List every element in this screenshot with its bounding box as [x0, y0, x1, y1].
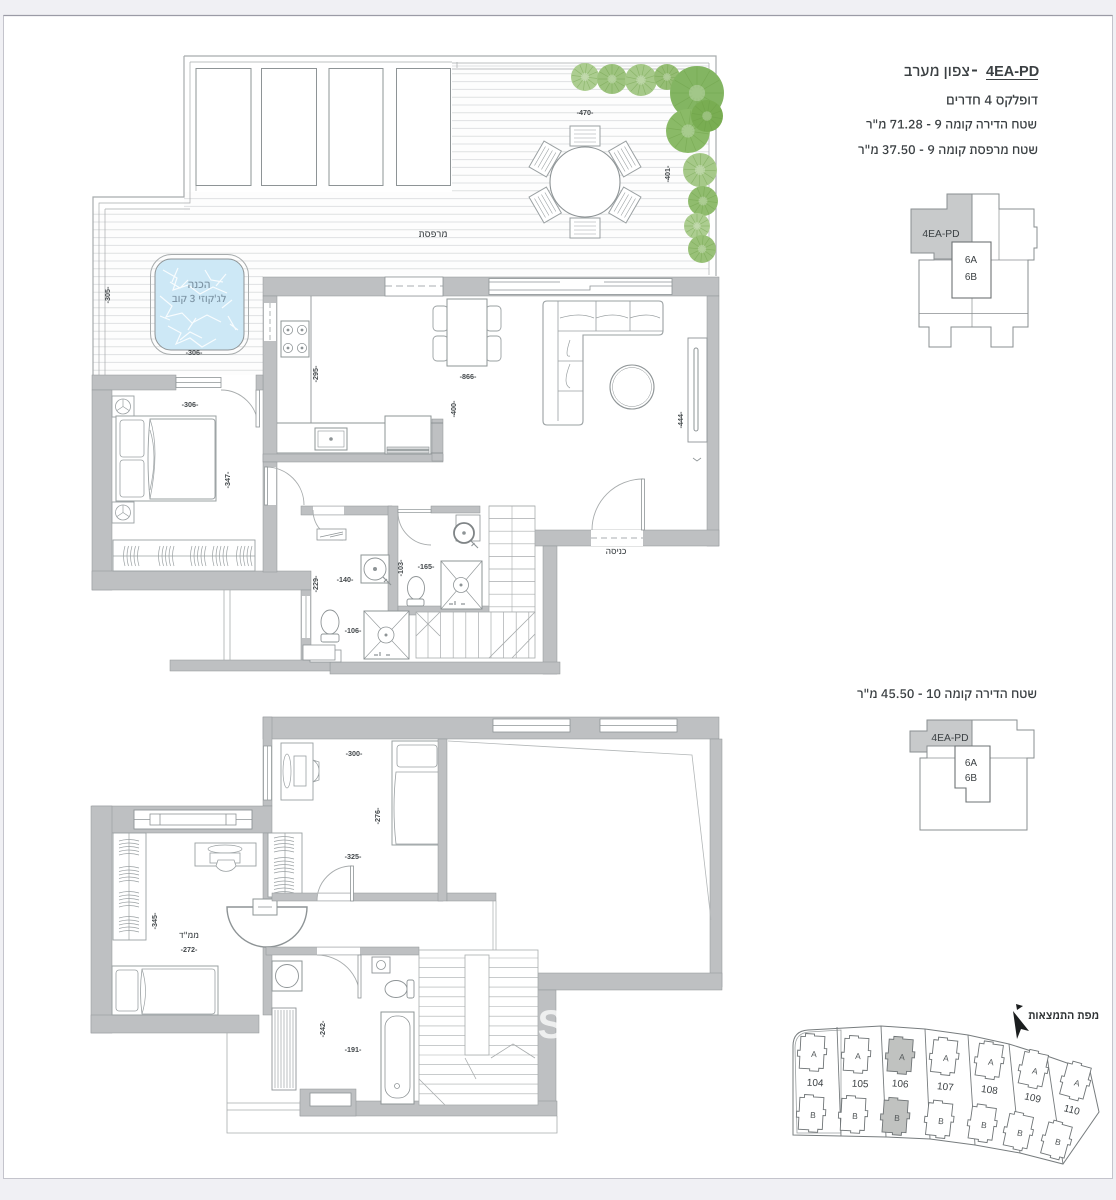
svg-text:107: 107 [936, 1081, 954, 1094]
svg-text:-306-: -306- [186, 348, 203, 357]
svg-text:A: A [899, 1052, 906, 1062]
svg-text:B: B [852, 1111, 859, 1121]
svg-text:4EA-PD: 4EA-PD [922, 229, 959, 240]
svg-text:-106-: -106- [345, 626, 362, 635]
svg-text:-140-: -140- [337, 575, 354, 584]
svg-text:-276-: -276- [373, 807, 382, 824]
svg-text:-272-: -272- [181, 945, 198, 954]
svg-text:4EA-PD: 4EA-PD [931, 733, 968, 744]
svg-text:-191-: -191- [345, 1045, 362, 1054]
svg-text:-229-: -229- [311, 575, 320, 592]
svg-text:-345-: -345- [150, 912, 159, 929]
svg-text:-866-: -866- [460, 372, 477, 381]
svg-text:-295-: -295- [311, 365, 320, 382]
svg-text:6A: 6A [965, 758, 978, 769]
svg-text:-347-: -347- [223, 471, 232, 488]
svg-text:B: B [810, 1110, 817, 1120]
svg-text:-470-: -470- [577, 108, 594, 117]
svg-text:B: B [894, 1113, 901, 1123]
svg-text:-306-: -306- [182, 400, 199, 409]
svg-text:-401-: -401- [663, 165, 672, 182]
svg-text:104: 104 [807, 1078, 825, 1090]
svg-text:-400-: -400- [449, 400, 458, 417]
svg-text:S: S [538, 1003, 565, 1047]
svg-text:-242-: -242- [318, 1020, 327, 1037]
svg-text:-444-: -444- [676, 411, 685, 428]
svg-text:4EA-PD: 4EA-PD [986, 64, 1039, 80]
svg-text:6A: 6A [965, 255, 978, 266]
svg-text:A: A [855, 1051, 862, 1061]
svg-text:-300-: -300- [346, 749, 363, 758]
svg-text:A: A [811, 1049, 818, 1059]
svg-text:-103-: -103- [396, 559, 405, 576]
svg-text:6B: 6B [965, 272, 978, 283]
svg-text:105: 105 [852, 1079, 870, 1091]
svg-text:-305-: -305- [103, 286, 112, 303]
svg-text:106: 106 [891, 1078, 909, 1090]
svg-text:6B: 6B [965, 773, 978, 784]
svg-text:-165-: -165- [418, 562, 435, 571]
svg-text:-325-: -325- [345, 852, 362, 861]
